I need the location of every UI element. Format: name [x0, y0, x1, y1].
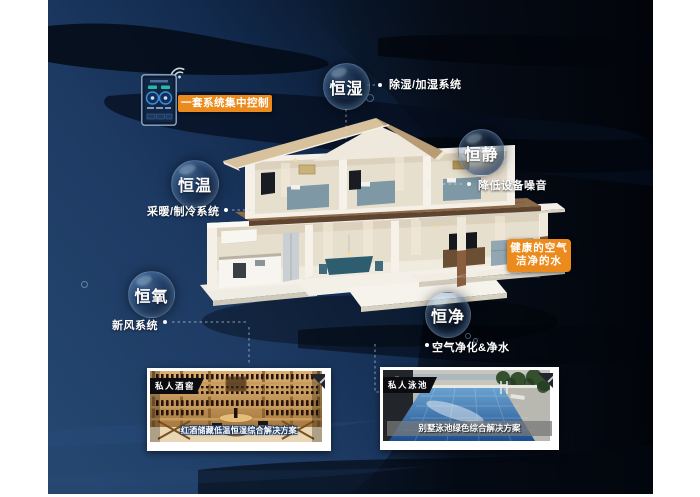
- healthy-air-line1: 健康的空气: [507, 242, 571, 255]
- callout-heating-cooling-system: 采暖/制冷系统: [147, 203, 220, 219]
- healthy-air-tag: 健康的空气 洁净的水: [507, 239, 571, 272]
- pool-caption: 别墅泳池绿色综合解决方案: [387, 421, 552, 436]
- corner-fold: [310, 374, 325, 389]
- callout-fresh-air-system: 新风系统: [112, 317, 158, 333]
- wine-cellar-caption: 红酒储藏低温恒湿综合解决方案: [150, 425, 328, 436]
- house-cutaway-illustration: [195, 113, 575, 361]
- pool-label: 私人泳池: [383, 377, 437, 393]
- pool-photo: 私人泳池 别墅泳池绿色综合解决方案: [383, 370, 556, 441]
- infographic-poster: 一套系统集中控制 健康的空气 洁净的水 恒湿 恒静 恒温 恒氧 恒净 除湿/加湿…: [0, 0, 700, 497]
- wine-cellar-label: 私人酒窖: [150, 378, 204, 394]
- badge-constant-oxygen: 恒氧: [128, 271, 175, 318]
- badge-constant-purity: 恒净: [425, 292, 471, 338]
- central-control-tag: 一套系统集中控制: [178, 95, 272, 112]
- callout-noise-reduction: 降低设备噪音: [478, 177, 547, 193]
- callout-dehumidify-system: 除湿/加湿系统: [389, 76, 462, 92]
- pool-card: 私人泳池 别墅泳池绿色综合解决方案: [380, 367, 559, 450]
- deco-bubble: [81, 281, 88, 288]
- badge-constant-humidity: 恒湿: [323, 63, 370, 110]
- control-panel-phone: [141, 74, 177, 126]
- healthy-air-line2: 洁净的水: [507, 255, 571, 268]
- badge-constant-temperature: 恒温: [171, 160, 219, 208]
- wine-cellar-card: 私人酒窖 红酒储藏低温恒湿综合解决方案: [147, 368, 331, 451]
- wine-cellar-photo: 私人酒窖 红酒储藏低温恒湿综合解决方案: [150, 371, 328, 442]
- callout-air-water-purification: 空气净化&净水: [432, 339, 509, 355]
- corner-fold: [538, 373, 553, 388]
- badge-constant-quiet: 恒静: [458, 129, 505, 176]
